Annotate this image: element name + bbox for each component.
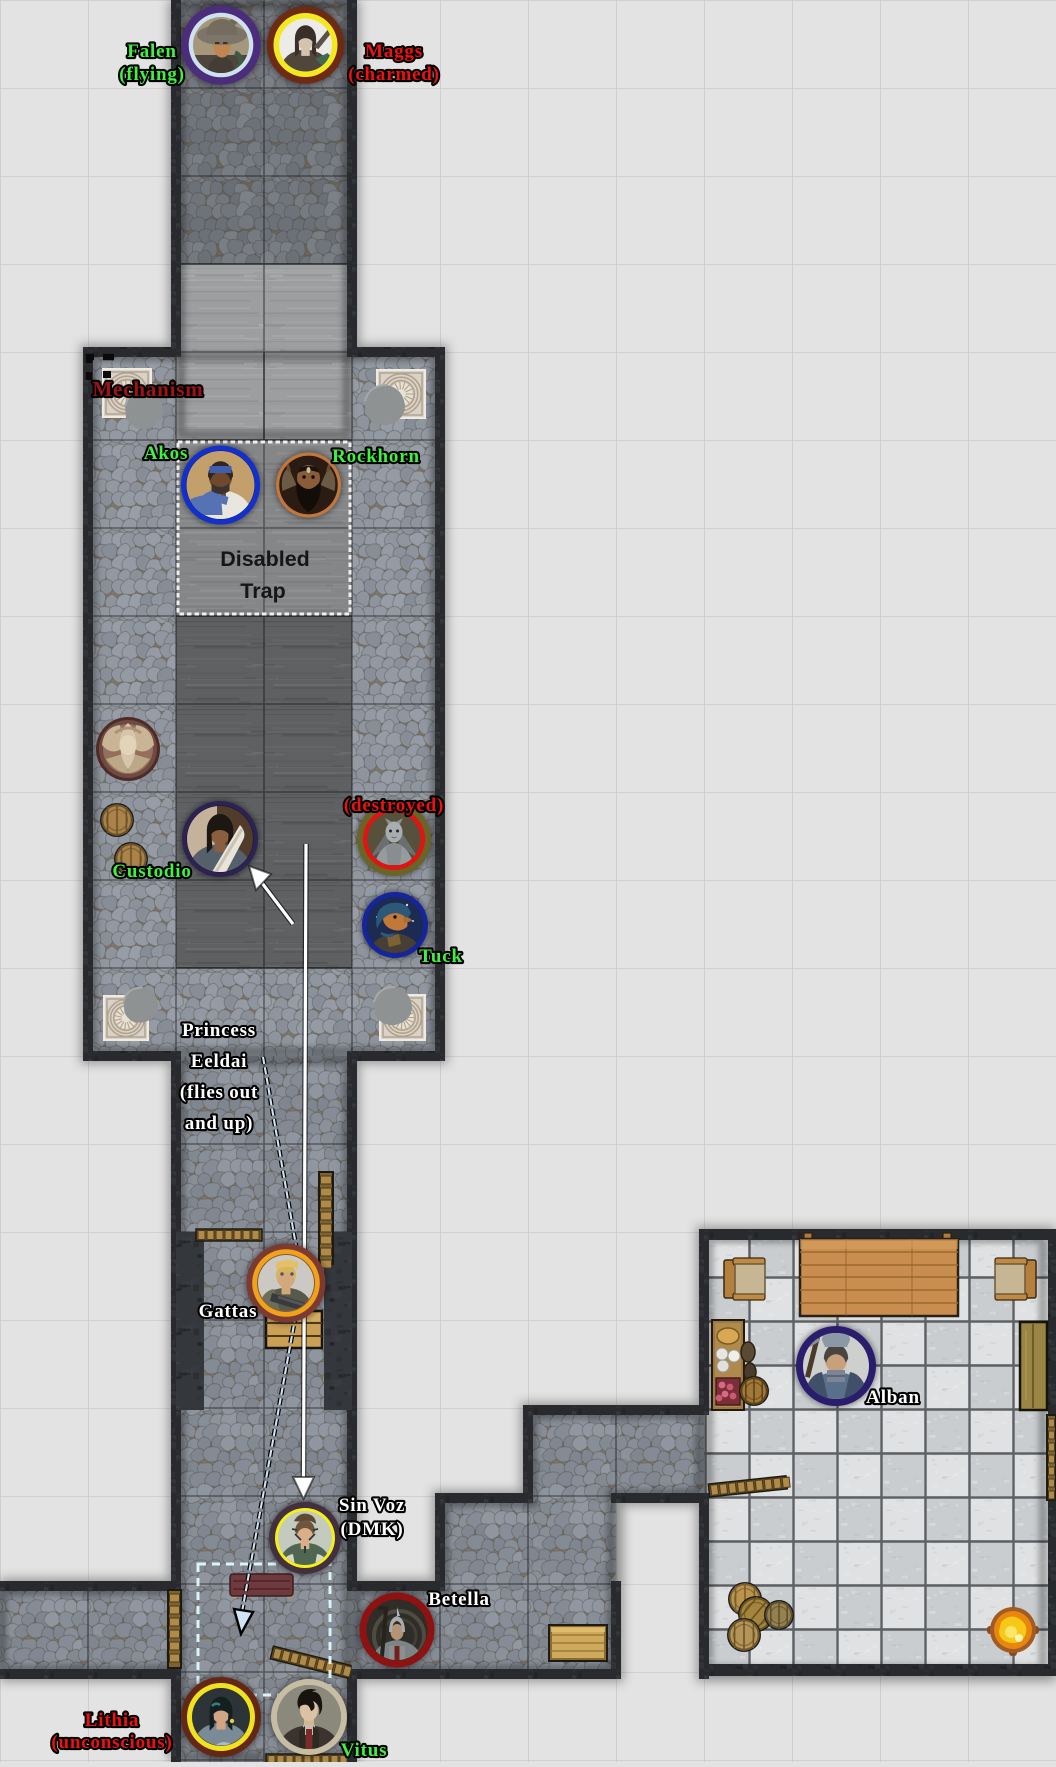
- svg-text:Vitus: Vitus: [341, 1740, 388, 1761]
- svg-text:Alban: Alban: [866, 1387, 920, 1408]
- svg-text:Mechanism: Mechanism: [92, 377, 203, 401]
- svg-text:Akos: Akos: [144, 443, 188, 464]
- svg-text:Gattas: Gattas: [199, 1301, 258, 1322]
- svg-text:Custodio: Custodio: [112, 861, 191, 882]
- svg-text:Tuck: Tuck: [419, 946, 463, 967]
- svg-text:Betella: Betella: [428, 1589, 490, 1610]
- svg-text:Rockhorn: Rockhorn: [332, 446, 420, 467]
- svg-text:(destroyed): (destroyed): [344, 795, 444, 816]
